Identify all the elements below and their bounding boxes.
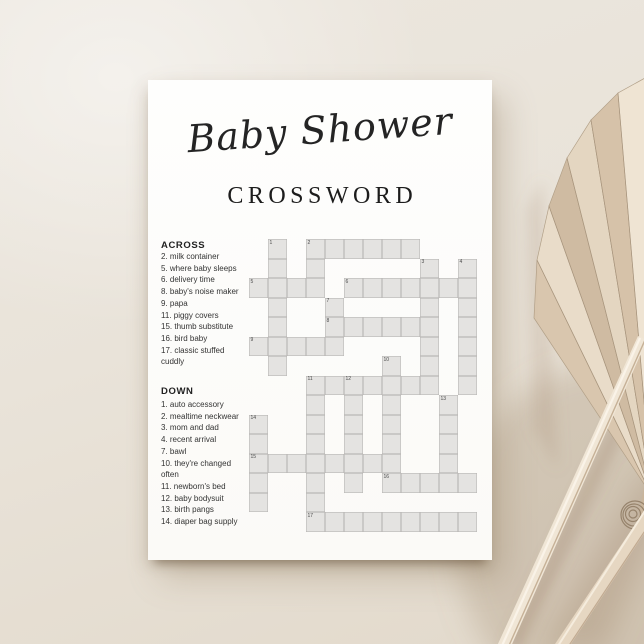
across-clue: 15. thumb substitute (161, 321, 245, 333)
grid-cell (287, 278, 306, 298)
across-clue: 9. papa (161, 298, 245, 310)
grid-cell (382, 434, 401, 454)
grid-cell (344, 473, 363, 493)
grid-cell (363, 512, 382, 532)
grid-cell (363, 317, 382, 337)
grid-cell (420, 337, 439, 357)
grid-cell (401, 376, 420, 396)
grid-cell (420, 298, 439, 318)
grid-cell (344, 317, 363, 337)
across-clue: 6. delivery time (161, 274, 245, 286)
grid-cell (439, 454, 458, 474)
down-clue-list: 1. auto accessory2. mealtime neckwear3. … (161, 399, 245, 528)
grid-cell: 2 (306, 239, 325, 259)
grid-cell (325, 512, 344, 532)
grid-cell (439, 512, 458, 532)
grid-cell (382, 395, 401, 415)
script-title: Baby Shower (147, 96, 493, 164)
grid-cell (382, 317, 401, 337)
grid-cell (306, 454, 325, 474)
grid-cell (382, 512, 401, 532)
grid-cell: 5 (249, 278, 268, 298)
grid-cell: 10 (382, 356, 401, 376)
grid-cell (363, 278, 382, 298)
crossword-grid: 1234567891011121314151617 (249, 239, 478, 533)
grid-cell: 9 (249, 337, 268, 357)
grid-cell (420, 512, 439, 532)
grid-cell (249, 493, 268, 513)
grid-cell: 12 (344, 376, 363, 396)
cell-number: 17 (308, 513, 314, 519)
grid-cell (420, 376, 439, 396)
grid-cell (363, 376, 382, 396)
cell-number: 16 (384, 474, 390, 480)
grid-cell (344, 454, 363, 474)
grid-cell (249, 473, 268, 493)
grid-cell: 15 (249, 454, 268, 474)
grid-cell (439, 415, 458, 435)
grid-cell (439, 473, 458, 493)
grid-cell (439, 278, 458, 298)
grid-cell (306, 493, 325, 513)
grid-cell: 1 (268, 239, 287, 259)
down-clue: 12. baby bodysuit (161, 493, 245, 505)
grid-cell (306, 415, 325, 435)
grid-cell (401, 278, 420, 298)
grid-cell (420, 473, 439, 493)
grid-cell (420, 356, 439, 376)
page-title: CROSSWORD (148, 183, 492, 210)
grid-cell: 17 (306, 512, 325, 532)
grid-cell: 7 (325, 298, 344, 318)
cell-number: 9 (251, 337, 254, 343)
grid-cell (325, 239, 344, 259)
grid-cell (325, 454, 344, 474)
cell-number: 11 (308, 376, 313, 382)
grid-cell (306, 434, 325, 454)
grid-cell (344, 415, 363, 435)
across-clue: 2. milk container (161, 251, 245, 263)
cell-number: 12 (346, 376, 352, 382)
grid-cell (306, 395, 325, 415)
down-clue: 13. birth pangs (161, 504, 245, 516)
grid-cell (344, 239, 363, 259)
grid-cell (268, 298, 287, 318)
down-clue: 1. auto accessory (161, 399, 245, 411)
grid-cell: 11 (306, 376, 325, 396)
grid-cell (458, 473, 477, 493)
grid-cell: 8 (325, 317, 344, 337)
grid-cell (458, 317, 477, 337)
grid-cell (344, 512, 363, 532)
grid-cell (363, 454, 382, 474)
cell-number: 10 (384, 357, 390, 363)
grid-cell (439, 434, 458, 454)
down-clue: 2. mealtime neckwear (161, 411, 245, 423)
grid-cell: 6 (344, 278, 363, 298)
grid-cell (268, 278, 287, 298)
cell-number: 5 (251, 279, 254, 285)
down-clue: 10. they're changed often (161, 458, 245, 481)
cell-number: 1 (270, 240, 273, 246)
down-clue: 4. recent arrival (161, 434, 245, 446)
grid-cell (325, 376, 344, 396)
grid-cell (401, 317, 420, 337)
grid-cell (382, 239, 401, 259)
across-clue: 17. classic stuffed cuddly (161, 345, 245, 368)
cell-number: 14 (251, 415, 257, 421)
grid-cell (268, 317, 287, 337)
grid-cell (249, 434, 268, 454)
crossword-game-card: Baby Shower CROSSWORD ACROSS 2. milk con… (148, 80, 492, 560)
grid-cell (401, 473, 420, 493)
down-clue: 7. bawl (161, 446, 245, 458)
grid-cell (268, 259, 287, 279)
grid-cell (325, 337, 344, 357)
grid-cell (287, 454, 306, 474)
grid-cell (458, 376, 477, 396)
grid-cell (344, 434, 363, 454)
cell-number: 8 (327, 318, 330, 324)
grid-cell: 13 (439, 395, 458, 415)
grid-cell (306, 473, 325, 493)
grid-cell (382, 415, 401, 435)
grid-cell: 4 (458, 259, 477, 279)
grid-cell (382, 376, 401, 396)
grid-cell (306, 337, 325, 357)
grid-cell (268, 454, 287, 474)
cell-number: 15 (251, 454, 257, 460)
grid-cell (420, 278, 439, 298)
cell-number: 2 (308, 240, 311, 246)
grid-cell (420, 317, 439, 337)
grid-cell (363, 239, 382, 259)
grid-cell (306, 259, 325, 279)
grid-cell (458, 298, 477, 318)
cell-number: 6 (346, 279, 349, 285)
grid-cell (458, 356, 477, 376)
grid-cell (268, 356, 287, 376)
grid-cell (458, 512, 477, 532)
grid-cell (344, 395, 363, 415)
grid-cell: 16 (382, 473, 401, 493)
grid-cell (382, 278, 401, 298)
across-clue: 8. baby's noise maker (161, 286, 245, 298)
down-heading: DOWN (161, 386, 251, 397)
down-clue: 11. newborn's bed (161, 481, 245, 493)
grid-cell (287, 337, 306, 357)
grid-cell (401, 512, 420, 532)
cell-number: 7 (327, 298, 330, 304)
down-clue: 3. mom and dad (161, 422, 245, 434)
grid-cell (268, 337, 287, 357)
grid-cell (458, 337, 477, 357)
cell-number: 3 (422, 259, 425, 265)
product-photo-background: Baby Shower CROSSWORD ACROSS 2. milk con… (0, 0, 644, 644)
across-heading: ACROSS (161, 240, 251, 251)
across-clue: 16. bird baby (161, 333, 245, 345)
grid-cell (401, 239, 420, 259)
across-clue-list: 2. milk container5. where baby sleeps6. … (161, 251, 245, 368)
cell-number: 13 (441, 396, 447, 402)
grid-cell (458, 278, 477, 298)
cell-number: 4 (460, 259, 463, 265)
grid-cell (306, 278, 325, 298)
grid-cell: 14 (249, 415, 268, 435)
grid-cell (382, 454, 401, 474)
down-clue: 14. diaper bag supply (161, 516, 245, 528)
grid-cell: 3 (420, 259, 439, 279)
across-clue: 11. piggy covers (161, 310, 245, 322)
across-clue: 5. where baby sleeps (161, 263, 245, 275)
